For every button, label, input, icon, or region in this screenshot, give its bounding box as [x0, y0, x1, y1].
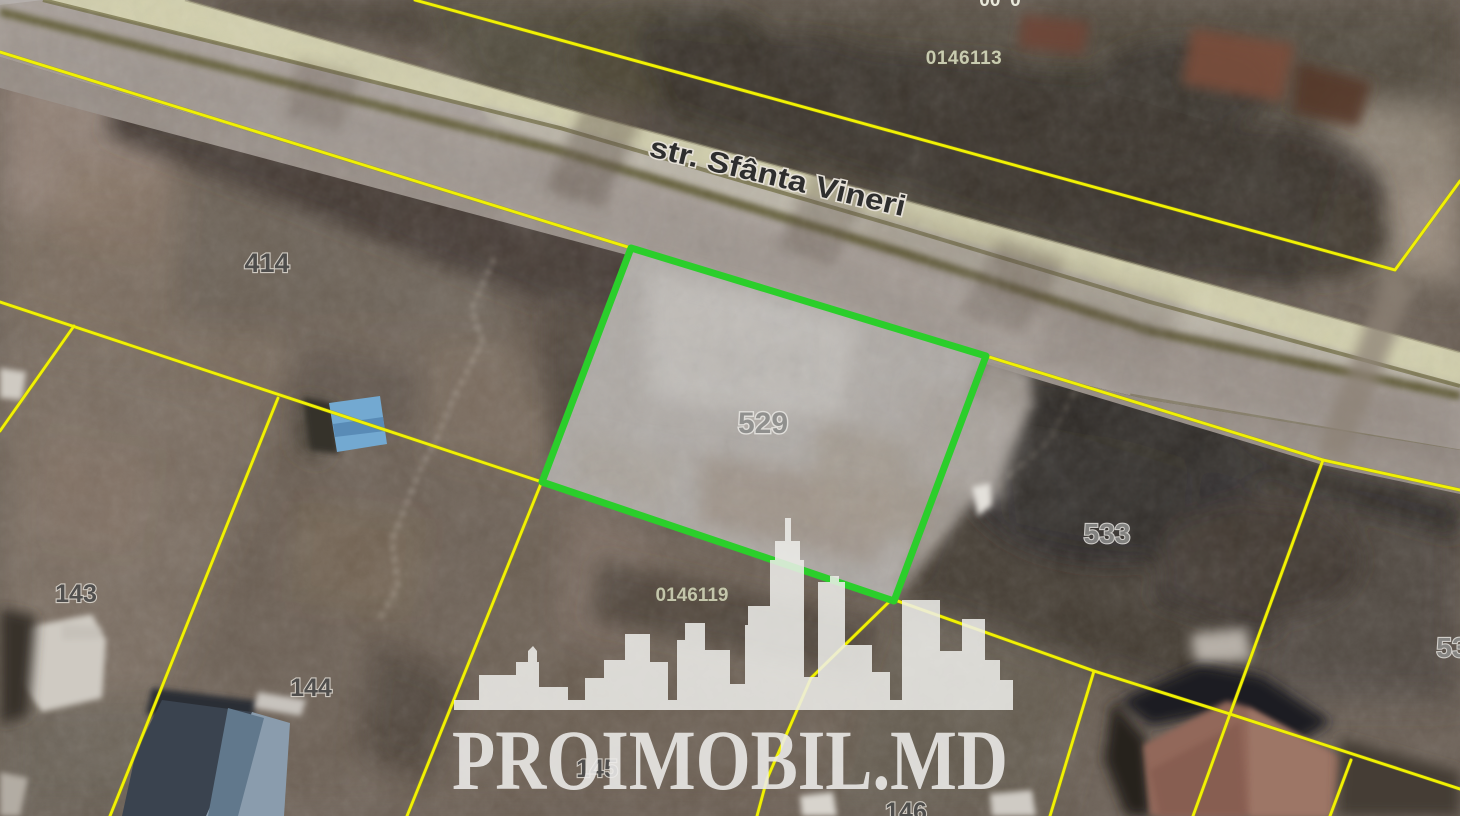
svg-text:414: 414 [244, 248, 289, 278]
svg-text:144: 144 [290, 674, 332, 702]
svg-text:PROIMOBIL.MD: PROIMOBIL.MD [452, 712, 1008, 808]
svg-text:0146113: 0146113 [926, 48, 1002, 69]
svg-text:53: 53 [1436, 632, 1460, 663]
svg-text:00' 0: 00' 0 [979, 0, 1021, 11]
svg-text:529: 529 [738, 407, 788, 440]
svg-text:143: 143 [55, 580, 97, 608]
svg-text:533: 533 [1084, 518, 1131, 549]
svg-text:0146119: 0146119 [656, 585, 729, 606]
